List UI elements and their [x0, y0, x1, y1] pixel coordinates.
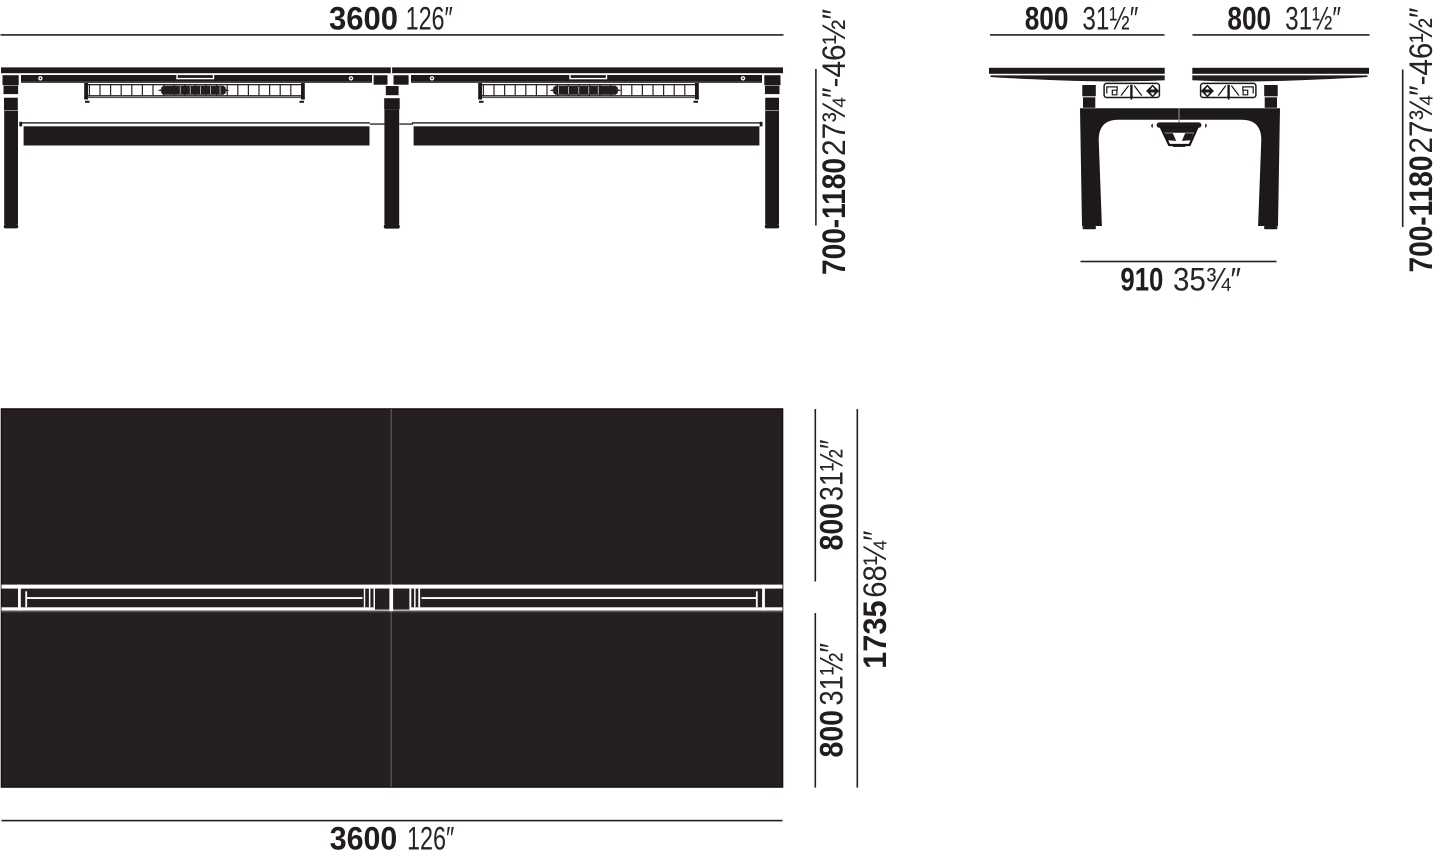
- svg-text:3600: 3600: [330, 820, 398, 856]
- svg-text:27¾″-46½″: 27¾″-46½″: [1403, 8, 1439, 154]
- svg-text:126″: 126″: [406, 1, 453, 37]
- svg-text:700-1180: 700-1180: [816, 158, 852, 275]
- svg-text:3600: 3600: [329, 1, 398, 37]
- svg-text:27¾″-46½″: 27¾″-46½″: [816, 9, 852, 156]
- svg-text:68¼″: 68¼″: [857, 531, 893, 598]
- svg-text:31½″: 31½″: [814, 440, 850, 502]
- svg-text:31½″: 31½″: [1082, 1, 1138, 37]
- svg-text:800: 800: [814, 503, 850, 551]
- svg-text:35¾″: 35¾″: [1173, 262, 1241, 298]
- svg-text:800: 800: [1025, 1, 1069, 37]
- svg-text:31½″: 31½″: [1285, 1, 1341, 37]
- svg-text:31½″: 31½″: [814, 643, 850, 706]
- svg-text:1735: 1735: [857, 600, 893, 669]
- svg-text:800: 800: [814, 710, 850, 758]
- svg-text:700-1180: 700-1180: [1403, 156, 1439, 273]
- svg-text:910: 910: [1120, 262, 1163, 298]
- svg-text:126″: 126″: [407, 820, 454, 856]
- svg-text:800: 800: [1227, 1, 1271, 37]
